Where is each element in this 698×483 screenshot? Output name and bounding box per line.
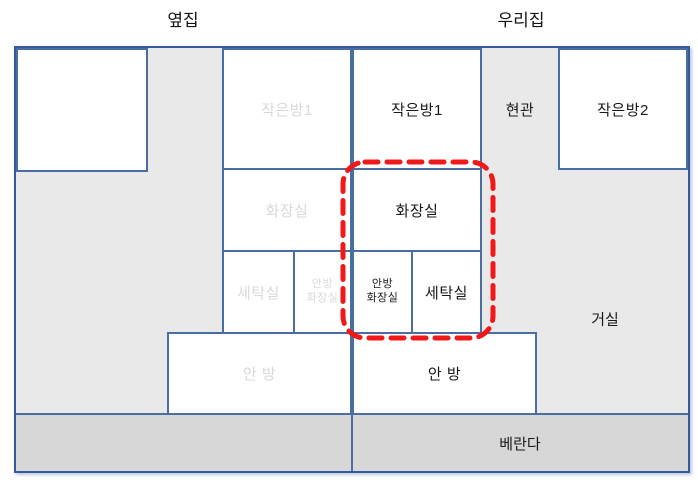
room-our-laundry-room: 세탁실 (411, 250, 482, 334)
room-our-small-room-2: 작은방2 (558, 48, 688, 170)
room-label: 안 방 (428, 363, 461, 384)
room-label-line2: 화장실 (367, 292, 399, 304)
room-label: 안방화장실 (367, 278, 399, 306)
room-our-master-room: 안 방 (352, 332, 537, 415)
room-neighbor-unlabeled (16, 48, 148, 172)
room-neighbor-master-bathroom: 안방화장실 (293, 250, 352, 334)
room-label: 화장실 (266, 200, 309, 221)
room-label-line1: 안방 (312, 278, 333, 290)
room-neighbor-bathroom: 화장실 (222, 168, 352, 252)
room-label: 작은방2 (597, 99, 649, 120)
room-neighbor-laundry-room: 세탁실 (222, 250, 295, 334)
entrance-label: 현관 (506, 99, 535, 120)
our-house-title: 우리집 (498, 6, 545, 31)
room-our-master-bathroom: 안방화장실 (352, 250, 413, 334)
neighbor-house-title: 옆집 (167, 6, 198, 31)
room-neighbor-master-room: 안 방 (167, 332, 352, 415)
shared-wall-line (351, 48, 353, 471)
room-label: 안방화장실 (307, 278, 339, 306)
room-label: 안 방 (243, 363, 276, 384)
room-label-line2: 화장실 (307, 292, 339, 304)
room-label: 세탁실 (237, 282, 280, 303)
room-label: 세탁실 (425, 282, 468, 303)
room-label: 화장실 (396, 200, 439, 221)
room-label-line1: 안방 (372, 278, 393, 290)
room-label: 작은방1 (261, 99, 313, 120)
floor-plan-canvas: 옆집 우리집 작은방1 화장실 세탁실 안방화장실 안 방 작은방1 현관 작은… (0, 0, 698, 483)
entrance-hall-area: 현관 (482, 48, 558, 170)
floor-plan-outline: 작은방1 화장실 세탁실 안방화장실 안 방 작은방1 현관 작은방2 화장실 … (14, 46, 690, 473)
living-room-label: 거실 (591, 309, 619, 330)
room-our-small-room-1: 작은방1 (352, 48, 482, 170)
room-neighbor-small-room-1: 작은방1 (222, 48, 352, 170)
room-label: 작은방1 (391, 99, 443, 120)
veranda-label: 베란다 (352, 415, 688, 471)
room-our-bathroom: 화장실 (352, 168, 482, 252)
